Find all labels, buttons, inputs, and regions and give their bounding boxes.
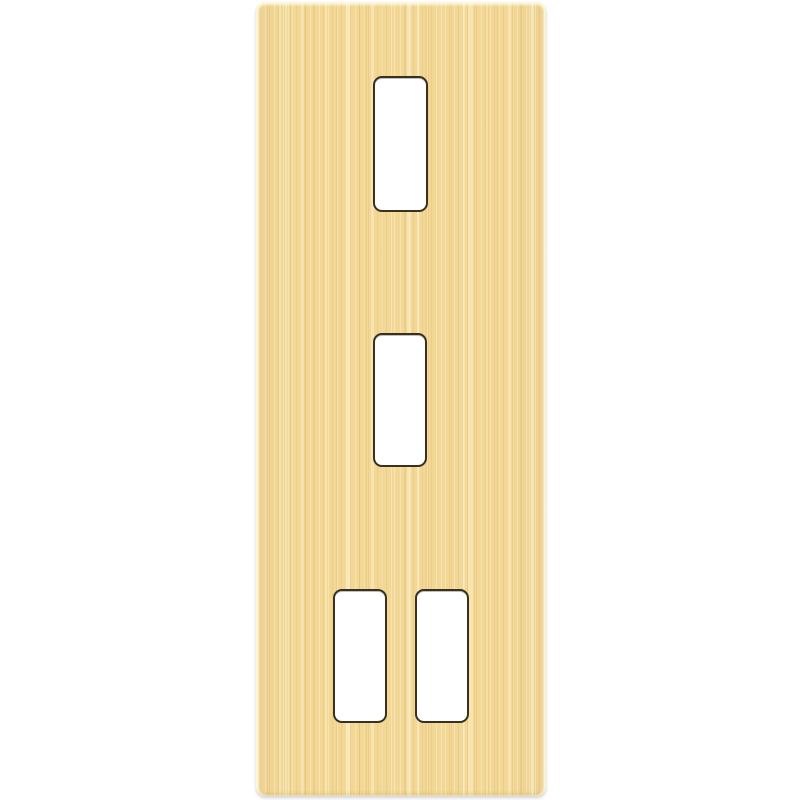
grid-wall-plate <box>256 2 546 796</box>
module-cutout-top <box>373 76 428 212</box>
module-cutout-bottom-right <box>415 589 469 723</box>
product-photo <box>0 0 800 800</box>
module-cutout-middle <box>373 333 427 467</box>
module-cutout-bottom-left <box>333 589 387 723</box>
